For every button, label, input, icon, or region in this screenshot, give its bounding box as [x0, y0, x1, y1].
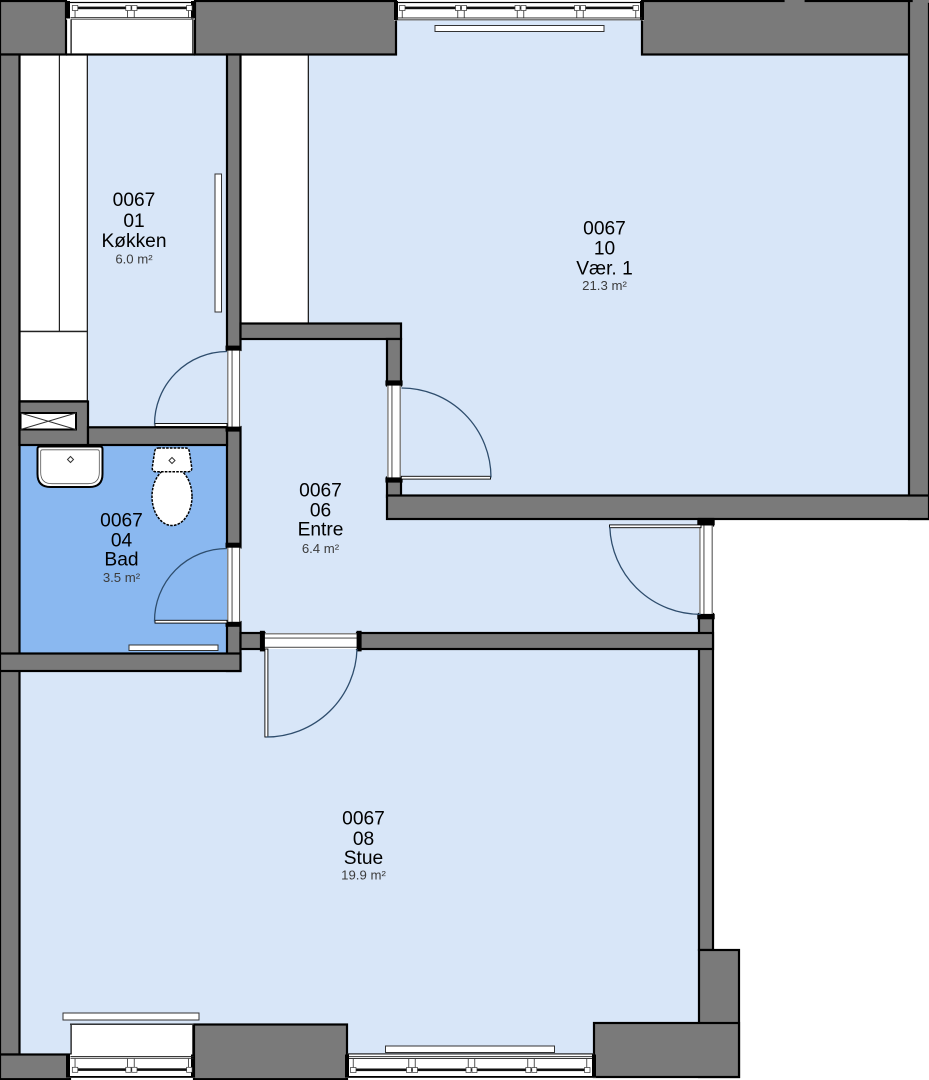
svg-text:6.4 m²: 6.4 m² — [302, 541, 340, 556]
svg-text:10: 10 — [594, 239, 615, 260]
svg-text:0067: 0067 — [113, 190, 156, 211]
svg-text:21.3 m²: 21.3 m² — [582, 278, 627, 293]
svg-text:Stue: Stue — [344, 848, 383, 869]
svg-text:Bad: Bad — [104, 550, 138, 571]
svg-text:3.5 m²: 3.5 m² — [103, 570, 141, 585]
svg-text:Vær. 1: Vær. 1 — [576, 258, 633, 279]
svg-text:Køkken: Køkken — [101, 231, 166, 252]
svg-text:0067: 0067 — [100, 510, 143, 531]
svg-text:Entre: Entre — [298, 520, 344, 541]
svg-text:0067: 0067 — [583, 219, 626, 240]
svg-text:19.9 m²: 19.9 m² — [341, 868, 386, 883]
svg-text:6.0 m²: 6.0 m² — [115, 251, 153, 266]
svg-text:08: 08 — [353, 829, 374, 850]
svg-text:0067: 0067 — [299, 481, 342, 502]
svg-text:0067: 0067 — [342, 808, 385, 829]
svg-text:01: 01 — [123, 211, 144, 232]
